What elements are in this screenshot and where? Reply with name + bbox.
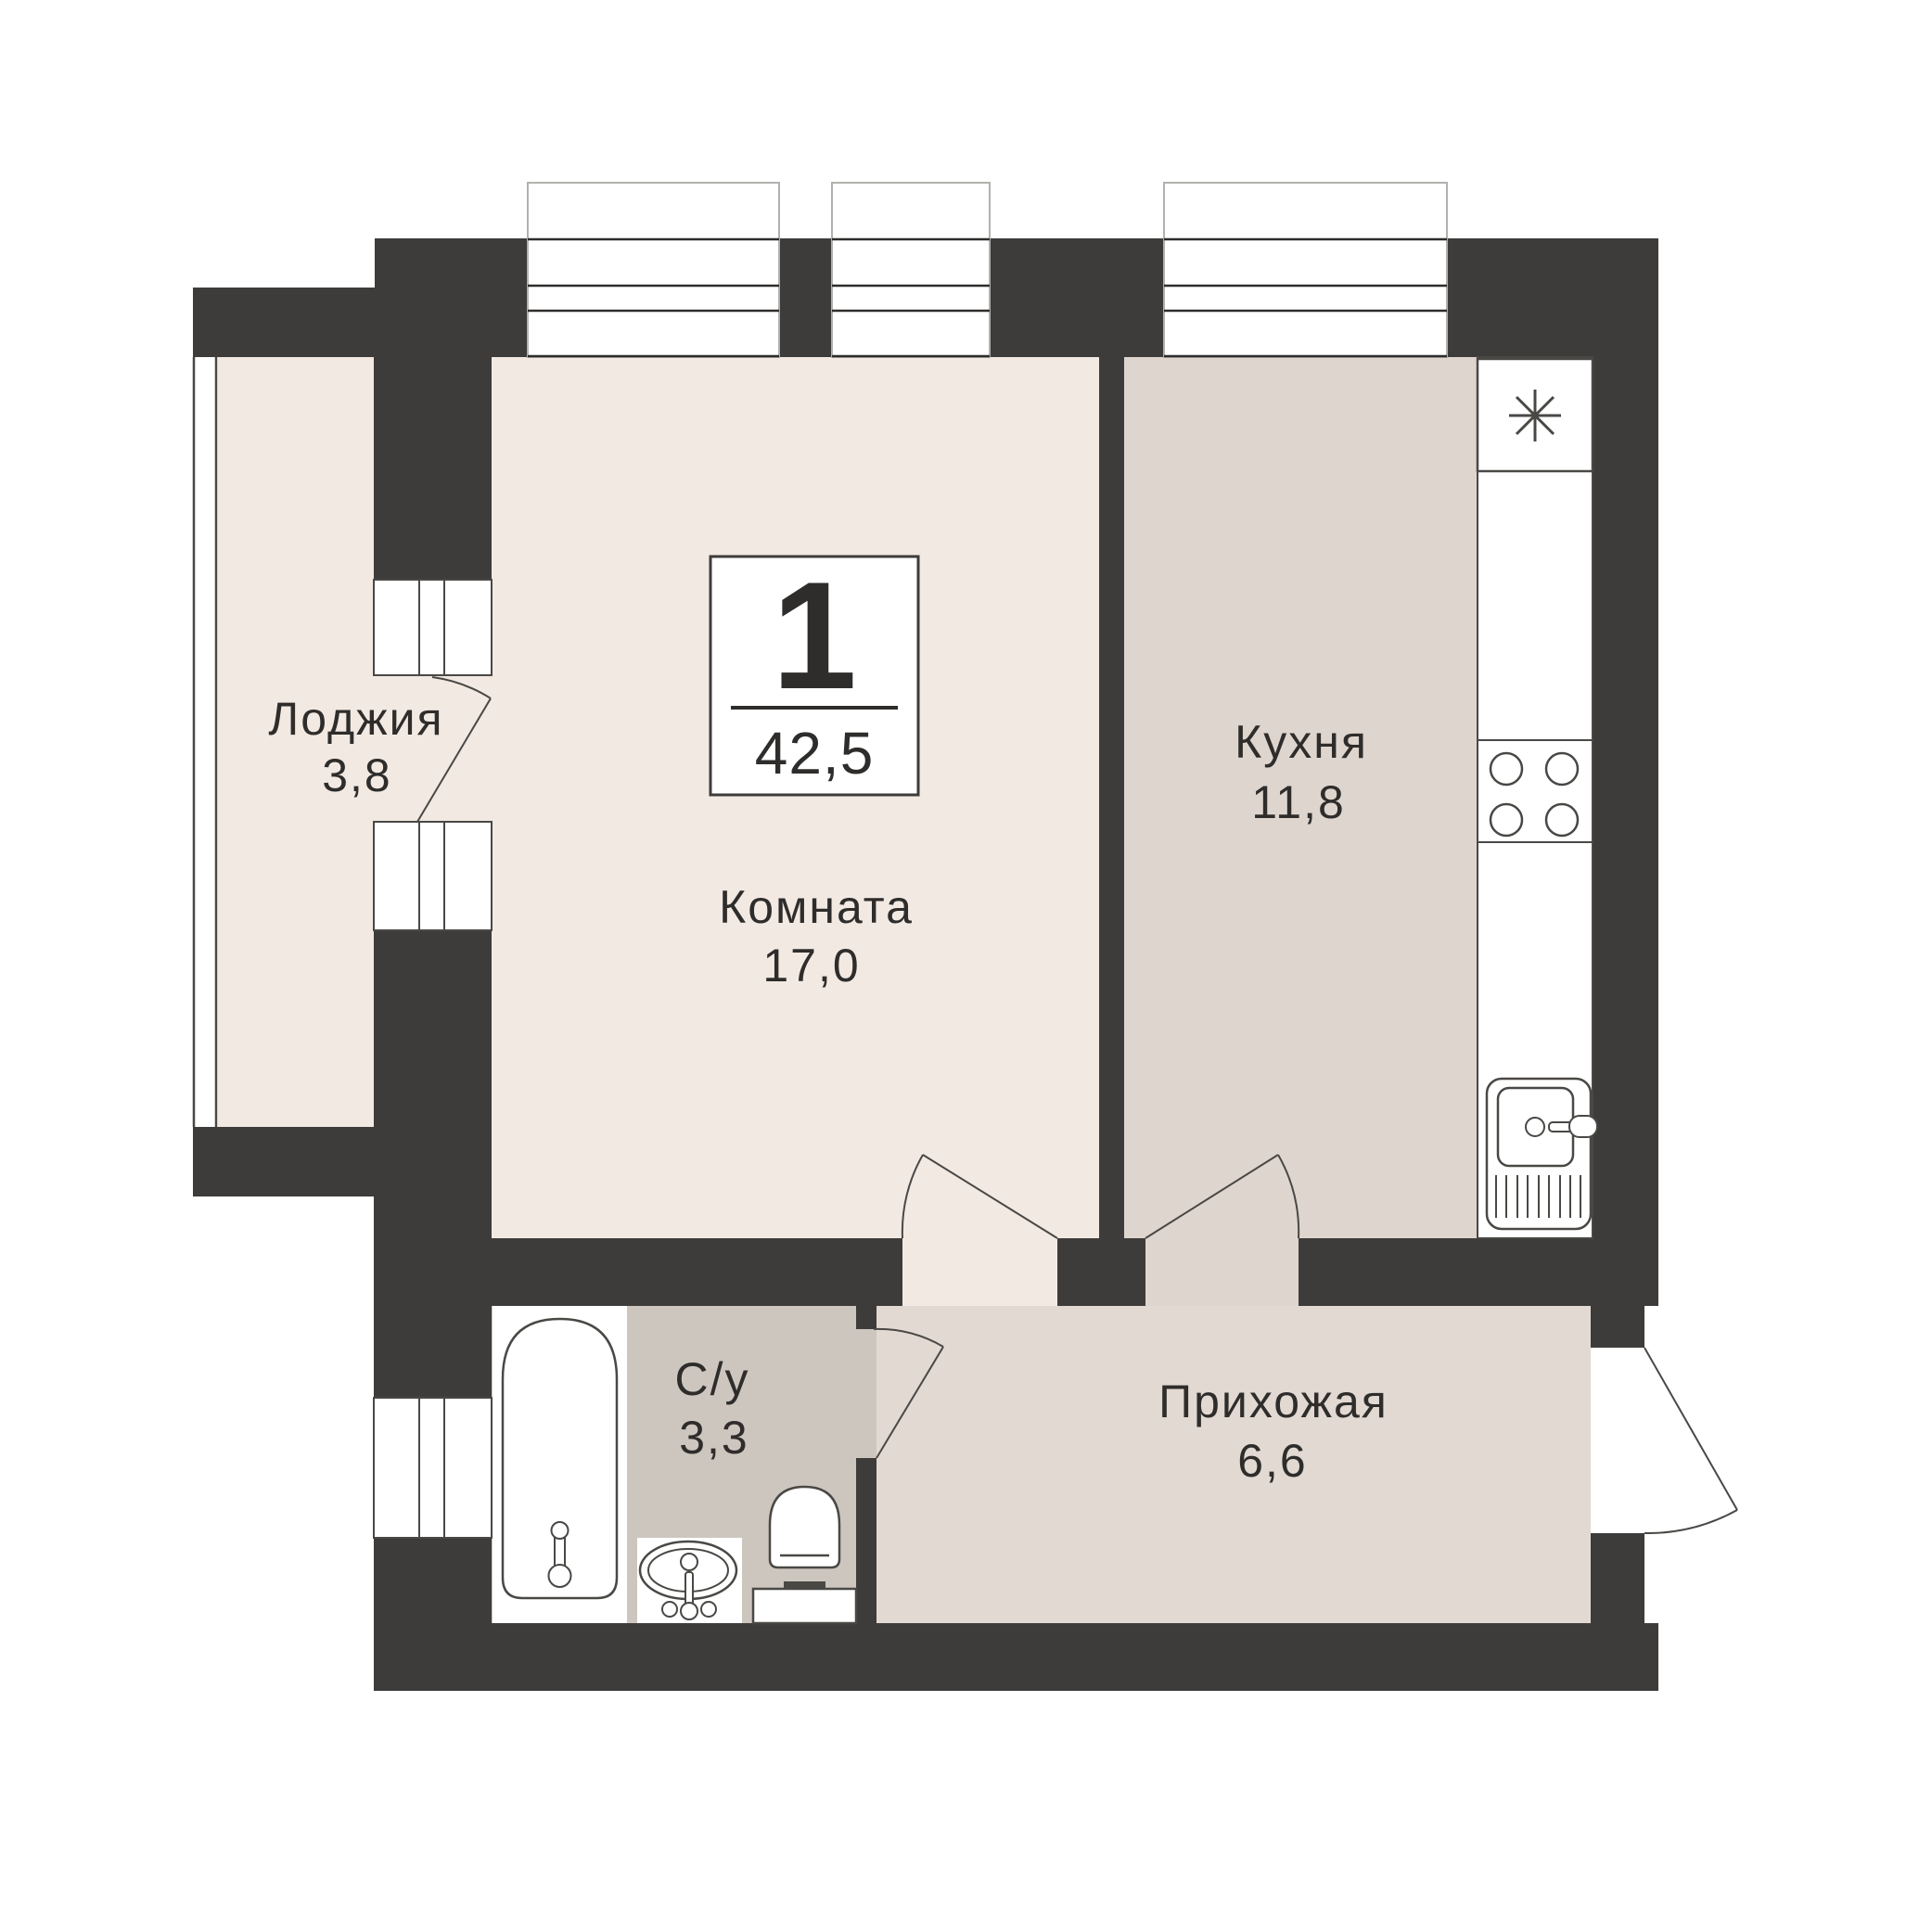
fridge — [1478, 359, 1593, 471]
floor-plan-page: 1 42,5 Лоджия 3,8 Комната 17,0 Кухня 11,… — [0, 0, 1932, 1932]
kitchen-sink — [1487, 1079, 1597, 1229]
wall-room-kitchen-divider — [1099, 357, 1124, 1238]
window-living-room-2 — [832, 183, 990, 357]
floor-plan-drawing: 1 42,5 Лоджия 3,8 Комната 17,0 Кухня 11,… — [0, 0, 1932, 1932]
apartment-badge: 1 42,5 — [710, 550, 918, 795]
facade-windows — [528, 183, 1447, 357]
wall-bathroom-right — [856, 1458, 876, 1623]
wall-kitchen-bottom — [1299, 1238, 1593, 1306]
washbasin-icon — [637, 1538, 742, 1623]
label-hallway: Прихожая — [1158, 1375, 1388, 1427]
loggia-glazing — [192, 357, 218, 1127]
fridge-icon — [1509, 390, 1561, 441]
wall-bottom — [374, 1623, 1658, 1691]
wall-loggia-bottom — [193, 1127, 374, 1196]
area-loggia: 3,8 — [322, 749, 392, 801]
label-bathroom: С/у — [675, 1353, 750, 1405]
floor-living-room-door-opening — [902, 1238, 1057, 1306]
label-loggia: Лоджия — [268, 693, 443, 745]
window-kitchen — [1164, 183, 1447, 357]
badge-total-area: 42,5 — [755, 720, 875, 787]
badge-rooms-count: 1 — [772, 550, 857, 721]
loggia-window-upper — [374, 580, 492, 675]
bathroom-window — [374, 1398, 492, 1538]
loggia-window-lower — [374, 822, 492, 930]
wall-bathroom-stub — [856, 1306, 876, 1329]
area-living-room: 17,0 — [762, 940, 860, 992]
floor-kitchen-door-opening — [1145, 1238, 1299, 1306]
wall-loggia-top — [193, 288, 375, 357]
wall-entry-jamb-top — [1591, 1306, 1644, 1348]
area-kitchen: 11,8 — [1251, 776, 1346, 828]
floor-hallway — [876, 1306, 1591, 1623]
wall-entry-jamb-bottom — [1591, 1533, 1644, 1623]
label-living-room: Комната — [719, 881, 914, 933]
label-kitchen: Кухня — [1235, 716, 1368, 768]
kitchen-fixtures — [1478, 357, 1597, 1238]
wall-right — [1593, 238, 1658, 1306]
area-bathroom: 3,3 — [679, 1412, 749, 1464]
wall-between-doors — [1057, 1238, 1145, 1306]
wall-room-bottom-left — [492, 1238, 902, 1306]
window-living-room-1 — [528, 183, 779, 357]
floor-living-room — [492, 357, 1099, 1238]
bathtub-icon — [503, 1319, 617, 1598]
area-hallway: 6,6 — [1237, 1435, 1308, 1487]
